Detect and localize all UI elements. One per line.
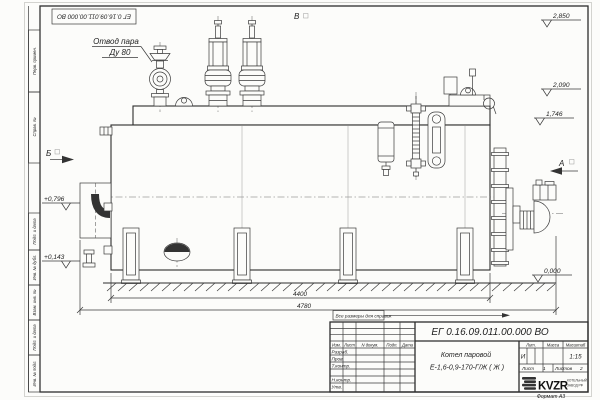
level-indicator	[428, 112, 445, 168]
pump-dome	[534, 201, 550, 233]
note-text: Все размеры для справок	[336, 313, 393, 318]
product-designation: Е-1,6-0,9-170-Г/Ж ( Ж )	[430, 365, 504, 372]
boiler-drawing: Перв. примен. Справ. № Подп. и дата Инв.…	[0, 0, 600, 400]
stamp-doc-number: ЕГ 0.16.09.011.00.000 ВО	[57, 13, 131, 20]
support-leg	[456, 228, 475, 284]
col-list: Лист	[343, 342, 355, 347]
scale-value: 1:15	[569, 354, 582, 361]
margin-cell: Подп. и дата	[29, 320, 41, 355]
elevation-value: +0,796	[44, 196, 65, 203]
top-stamp: ЕГ 0.16.09.011.00.000 ВО	[52, 9, 136, 24]
name-plate	[444, 77, 457, 94]
logo-caption-1: КОТЕЛЬНЫЙ	[567, 379, 588, 383]
margin-label: Взам. инв. №	[32, 289, 37, 315]
margin-cell: Инв. № дубл.	[29, 250, 41, 285]
row-tkontr: Т.контр.	[332, 364, 351, 369]
margin-label: Инв. № дубл.	[32, 255, 37, 281]
margin-cell: Взам. инв. №	[29, 285, 41, 320]
row-utv: Утв.	[332, 385, 343, 390]
elevation-value: 2,090	[552, 82, 570, 89]
margin-cell: Подп. и дата	[29, 213, 41, 250]
support-leg	[233, 228, 252, 284]
lifting-lug	[176, 98, 193, 107]
safety-valve-1	[205, 16, 231, 112]
row-nkontr: Н.контр.	[332, 378, 352, 383]
elevation-value: 0,000	[544, 268, 561, 275]
kvzr-logo: KVZR КОТЕЛЬНЫЙ ЗАВОД РФ	[522, 377, 588, 393]
callout-line1: Отвод пара	[93, 37, 139, 46]
col-podp: Подп.	[386, 342, 397, 347]
row-razrab: Разраб.	[332, 350, 349, 355]
title-block: ЕГ 0.16.09.011.00.000 ВО Изм. Лист N док…	[330, 322, 588, 393]
product-name: Котел паровой	[441, 351, 491, 359]
support-leg	[122, 228, 141, 284]
col-ndoc: N докум.	[362, 342, 379, 347]
rear-lifting-lug	[461, 88, 476, 96]
callout-line2: Ду 80	[109, 48, 131, 57]
sheet-number: 1	[543, 366, 546, 371]
scale-label: Масштаб	[566, 342, 586, 347]
pump-plate	[506, 188, 513, 250]
lit-value: И	[521, 354, 526, 361]
ground	[103, 283, 556, 291]
margin-label: Перв. примен.	[32, 47, 37, 75]
margin-label: Подп. и дата	[32, 324, 37, 351]
ground-hatch	[107, 283, 555, 291]
elevation-mark: 2,090	[541, 82, 581, 96]
sheet-label: Лист	[521, 366, 534, 371]
logo-caption-2: ЗАВОД РФ	[567, 384, 584, 388]
elevation-mark: 0,000	[532, 268, 572, 282]
lit-label: Лит.	[525, 342, 536, 347]
motor-box	[533, 185, 556, 200]
view-label-top: В	[294, 12, 300, 21]
support-leg	[339, 228, 358, 284]
margin-cell: Справ. №	[29, 92, 41, 163]
logo-text: KVZR	[538, 381, 569, 393]
sensor	[470, 69, 476, 76]
left-top-nozzle	[100, 127, 112, 135]
dim-overall-length: 4780	[297, 303, 312, 310]
row-prov: Пров.	[332, 357, 344, 362]
margin-label: Справ. №	[32, 117, 37, 136]
steam-outlet-callout: Отвод пара Ду 80	[92, 37, 152, 62]
view-label-right: А	[558, 159, 564, 168]
boiler-shell	[100, 106, 512, 270]
margin-cell: Перв. примен.	[29, 30, 41, 92]
margin-label: Инв. № подл.	[32, 361, 37, 387]
side-nozzle	[104, 246, 112, 254]
elevation-value: +0,143	[44, 254, 65, 261]
col-izm: Изм.	[332, 342, 341, 347]
sheets-label: Листов	[554, 366, 573, 371]
elevation-value: 2,850	[552, 13, 570, 20]
dim-body-length: 4400	[293, 291, 308, 298]
margin-column: Перв. примен. Справ. № Подп. и дата Инв.…	[29, 30, 41, 392]
safety-valve-2	[239, 16, 265, 112]
rear-flange-and-pump	[492, 148, 565, 266]
title-doc-number: ЕГ 0.16.09.011.00.000 ВО	[431, 327, 549, 338]
margin-label: Подп. и дата	[32, 218, 37, 245]
elevation-mark: 2,850	[541, 13, 581, 27]
sheets-total: 2	[579, 366, 583, 371]
mass-label: Масса	[547, 342, 560, 347]
format-label: Формат А3	[537, 394, 565, 400]
elevation-mark: +0,796	[42, 196, 80, 210]
side-nozzle	[104, 203, 112, 211]
blueprint-sheet: Перв. примен. Справ. № Подп. и дата Инв.…	[0, 0, 600, 400]
burner	[80, 183, 112, 267]
steam-valve	[150, 42, 171, 112]
col-data: Дата	[401, 342, 414, 347]
elevation-mark: +0,143	[42, 254, 80, 268]
elevation-value: 1,746	[546, 111, 563, 118]
margin-cell: Инв. № подл.	[29, 355, 41, 392]
elevation-mark: 1,746	[534, 111, 574, 125]
reference-note: Все размеры для справок	[333, 311, 510, 321]
view-label-left: Б	[46, 149, 51, 158]
